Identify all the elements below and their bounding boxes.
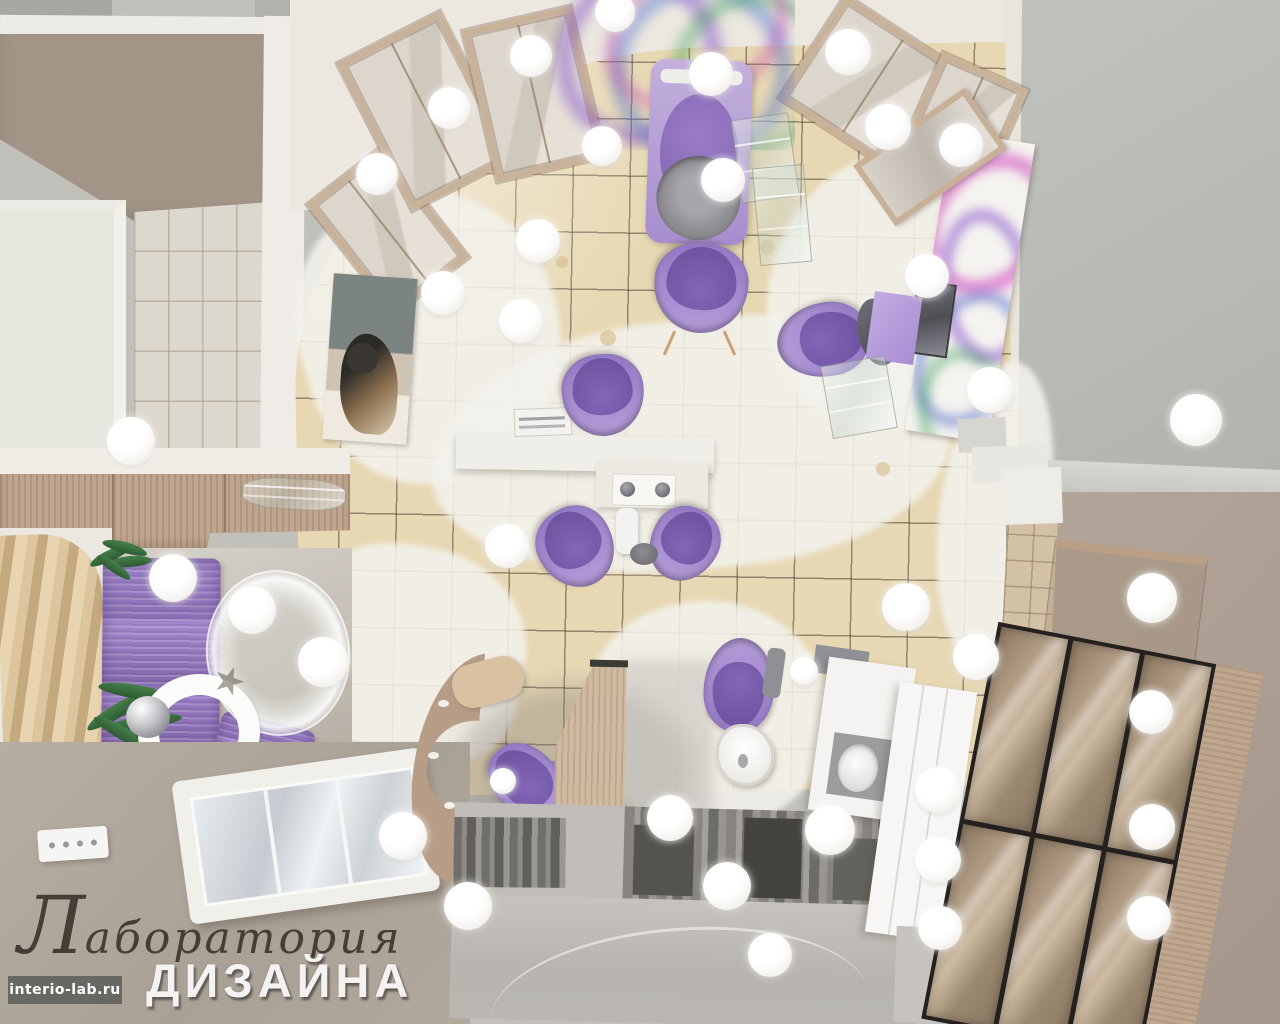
pedicure-stool-seat [630,543,658,565]
city-buildings-left [453,817,566,888]
glass-trolley [752,164,812,266]
pedicure-basin [716,724,774,786]
floor-dot [876,462,890,476]
counter-seam [224,474,226,532]
desk-drawer-unit [612,473,677,506]
crystal-sphere [126,696,170,738]
desk-lamp-dome [655,482,670,497]
headrest [660,69,742,86]
city-photo-floor [449,802,920,1024]
poster-figure [337,332,402,436]
glass-trolley [820,355,898,439]
adjacent-room-counter [0,200,126,462]
desk-tools-tray [514,407,573,437]
footprint-decal [438,700,449,707]
plant [88,540,158,580]
watermark-studio-name-2: ДИЗАЙНА [146,957,486,1004]
desk-lamp-dome [620,482,635,497]
left-counter-top-band [0,448,350,475]
city-tower [743,818,803,899]
footprint-decal [444,802,455,809]
chrome-rail [519,424,565,429]
watermark-website-badge: interio-lab.ru [8,976,122,1004]
chrome-rail [519,416,565,421]
floor-dot [600,330,616,346]
adjacent-room-taupe-wall [0,34,272,222]
fashion-poster [322,273,417,444]
adjacent-room-tiled-floor [134,202,272,452]
floor-dot [556,256,568,268]
remote-control [37,826,109,863]
station-panel [866,291,923,365]
city-tower [633,825,695,897]
wall-step [1001,467,1063,525]
partition-top-edge [590,660,628,668]
salon-top-view-render: Лаборатория ДИЗАЙНА interio-lab.ru [0,0,1280,1024]
footprint-decal [428,752,439,759]
counter-seam [112,474,114,548]
basin-drain [738,754,748,768]
